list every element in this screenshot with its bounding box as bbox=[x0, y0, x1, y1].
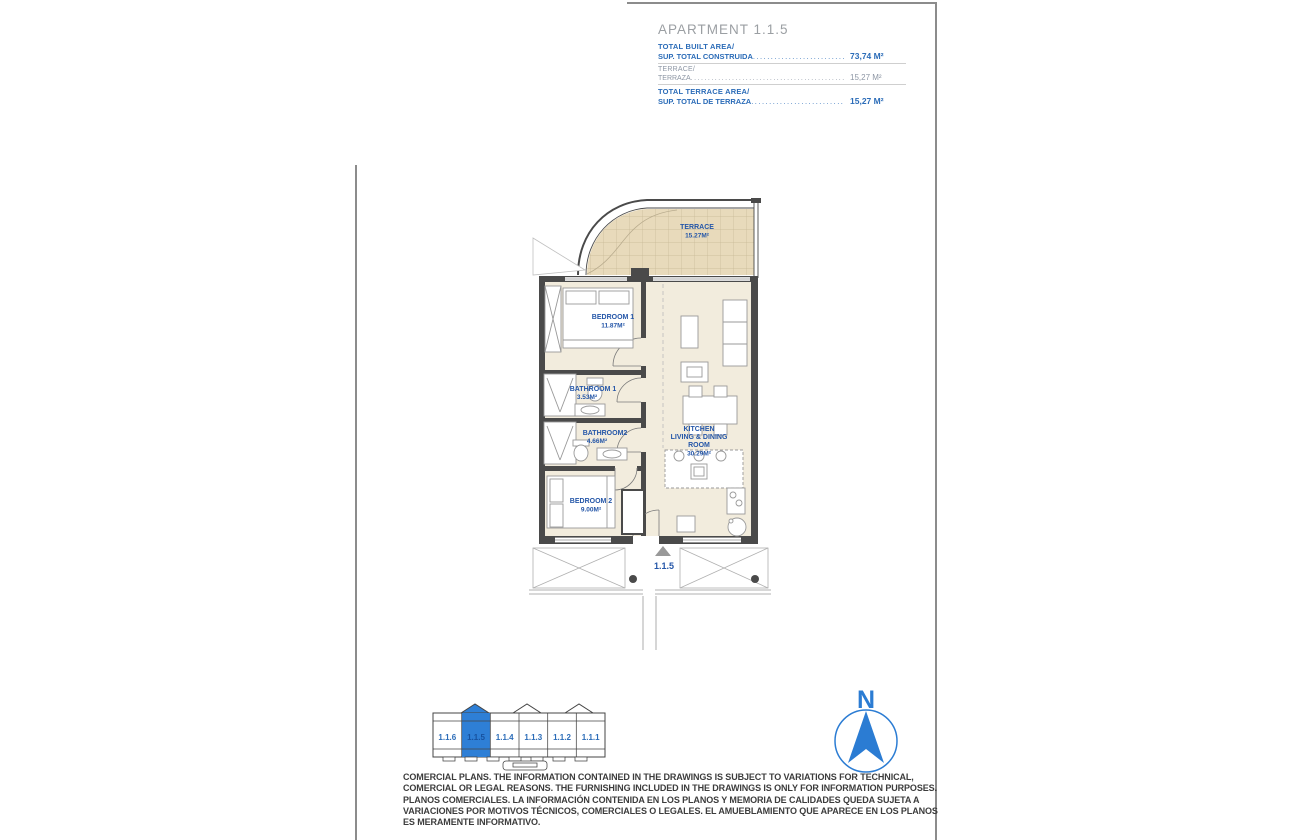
bathroom2-area: 4.66M² bbox=[587, 438, 608, 445]
terrace-label-es: TERRAZA bbox=[658, 75, 691, 82]
bedroom2-area: 9.00M² bbox=[581, 507, 602, 514]
leader-dots: .................................... bbox=[753, 52, 844, 61]
north-arrow-icon: N bbox=[820, 678, 920, 780]
terrace-area: 15.27M² bbox=[685, 233, 710, 240]
toilet-bathroom1 bbox=[587, 378, 603, 385]
bedroom1-label: BEDROOM 1 bbox=[592, 314, 635, 321]
coffee-table bbox=[681, 316, 698, 348]
landings bbox=[533, 548, 768, 588]
keyplan-unit-116: 1.1.6 bbox=[438, 733, 456, 742]
keyplan-unit-111: 1.1.1 bbox=[582, 733, 600, 742]
floor-plan: TERRACE 15.27M² BEDROOM 1 11.87M² BATHRO… bbox=[525, 190, 775, 660]
sheet-border-right bbox=[935, 2, 937, 840]
bathroom1-label: BATHROOM 1 bbox=[570, 386, 617, 393]
kitchen-area: 30.29M² bbox=[687, 451, 712, 458]
adjacent-roof-wedge bbox=[533, 238, 585, 275]
keyplan-unit-115: 1.1.5 bbox=[467, 733, 485, 742]
bathroom2-label: BATHROOM2 bbox=[583, 430, 628, 437]
bathroom1-area: 3.53M² bbox=[577, 394, 598, 401]
sheet-border-left bbox=[355, 165, 357, 840]
disclaimer-line-1: COMERCIAL PLANS. THE INFORMATION CONTAIN… bbox=[403, 772, 923, 783]
built-area-value: 73,74 M² bbox=[844, 51, 906, 61]
disclaimer-line-2: COMERCIAL OR LEGAL REASONS. THE FURNISHI… bbox=[403, 783, 923, 794]
terrace-value: 15,27 M² bbox=[844, 73, 906, 82]
total-terrace-label-es: SUP. TOTAL DE TERRAZA bbox=[658, 97, 751, 106]
plan-sheet: APARTMENT 1.1.5 TOTAL BUILT AREA/ SUP. T… bbox=[0, 0, 1290, 840]
dining-table bbox=[683, 396, 737, 424]
shower-bathroom1 bbox=[544, 374, 576, 416]
column bbox=[751, 575, 759, 583]
entrance-unit-label: 1.1.5 bbox=[654, 561, 674, 571]
sheet-border-top bbox=[627, 2, 937, 4]
wardrobe-bedroom2 bbox=[622, 490, 644, 534]
leader-dots: .................................... bbox=[751, 97, 844, 106]
column bbox=[629, 575, 637, 583]
bedroom1-area: 11.87M² bbox=[601, 323, 625, 330]
kitchen-label-1: KITCHEN bbox=[683, 426, 714, 433]
total-terrace-label-en: TOTAL TERRACE AREA/ bbox=[658, 87, 906, 96]
terrace-area bbox=[533, 198, 761, 278]
north-compass: N bbox=[820, 678, 920, 780]
page-title: APARTMENT 1.1.5 bbox=[658, 22, 906, 37]
entrance-arrow-icon bbox=[655, 546, 671, 556]
disclaimer-line-5: ES MERAMENTE INFORMATIVO. bbox=[403, 817, 923, 828]
kitchen-cabinet bbox=[677, 516, 695, 532]
highlighted-unit-roof bbox=[461, 704, 489, 713]
info-row-built-area: TOTAL BUILT AREA/ SUP. TOTAL CONSTRUIDA … bbox=[658, 40, 906, 64]
kitchen-label-3: ROOM bbox=[688, 442, 710, 449]
walkway-lines bbox=[529, 590, 771, 650]
keyplan-unit-113: 1.1.3 bbox=[524, 733, 542, 742]
kitchen-label-2: LIVING & DINING bbox=[671, 434, 728, 441]
key-plan-drawing: 1.1.6 1.1.5 1.1.4 1.1.3 1.1.2 1.1.1 bbox=[425, 695, 625, 775]
info-row-total-terrace: TOTAL TERRACE AREA/ SUP. TOTAL DE TERRAZ… bbox=[658, 85, 906, 108]
disclaimer-line-3: PLANOS COMERCIALES. LA INFORMACIÓN CONTE… bbox=[403, 795, 923, 806]
apartment-info-block: APARTMENT 1.1.5 TOTAL BUILT AREA/ SUP. T… bbox=[658, 22, 906, 108]
keyplan-balconies bbox=[443, 757, 587, 770]
info-row-terrace: TERRACE/ TERRAZA .......................… bbox=[658, 64, 906, 85]
leader-dots: ........................................… bbox=[691, 75, 844, 82]
disclaimer-line-4: VARIACIONES POR MOTIVOS TÉCNICOS, COMERC… bbox=[403, 806, 923, 817]
shower-bathroom2 bbox=[544, 422, 576, 464]
built-area-label-es: SUP. TOTAL CONSTRUIDA bbox=[658, 52, 753, 61]
built-area-label-en: TOTAL BUILT AREA/ bbox=[658, 42, 906, 51]
sofa bbox=[723, 300, 747, 366]
keyplan-unit-114: 1.1.4 bbox=[496, 733, 514, 742]
terrace-label-en: TERRACE/ bbox=[658, 66, 906, 73]
key-plan: 1.1.6 1.1.5 1.1.4 1.1.3 1.1.2 1.1.1 bbox=[425, 695, 625, 775]
bedroom2-label: BEDROOM 2 bbox=[570, 498, 613, 505]
total-terrace-value: 15,27 M² bbox=[844, 96, 906, 106]
disclaimer-text: COMERCIAL PLANS. THE INFORMATION CONTAIN… bbox=[403, 772, 923, 828]
floor-plan-drawing: TERRACE 15.27M² BEDROOM 1 11.87M² BATHRO… bbox=[525, 190, 775, 660]
keyplan-unit-112: 1.1.2 bbox=[553, 733, 571, 742]
kitchen-appliance-column bbox=[727, 488, 745, 514]
terrace-label: TERRACE bbox=[680, 224, 714, 231]
